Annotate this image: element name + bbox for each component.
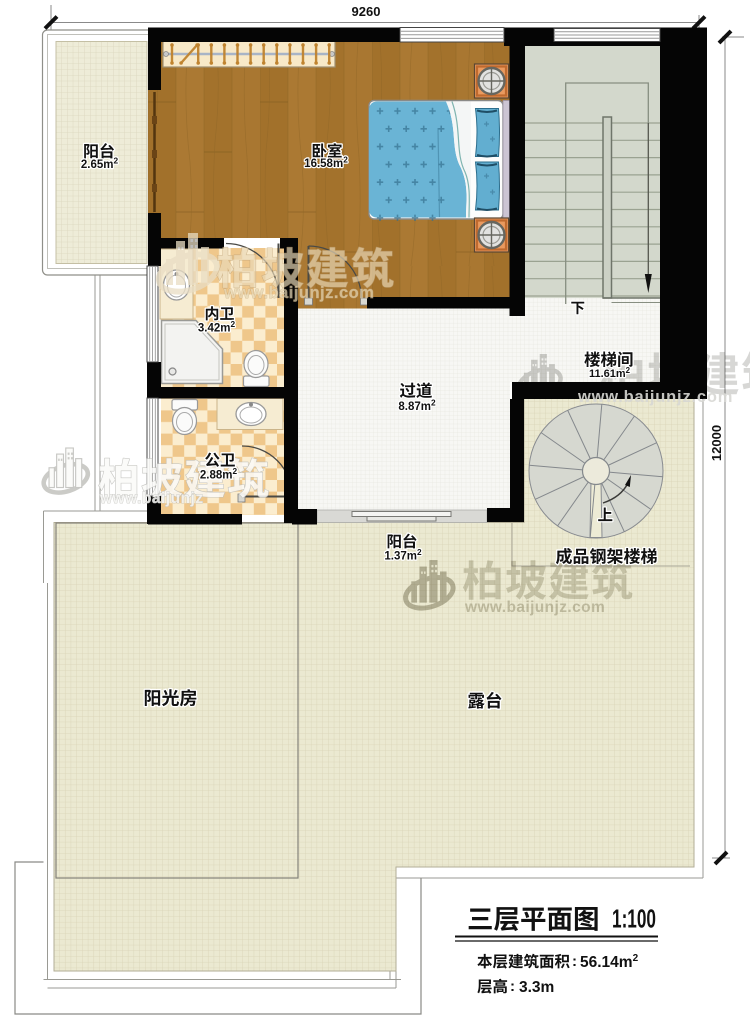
svg-text::: : [572,953,577,970]
svg-text:11.61m2: 11.61m2 [589,366,631,380]
svg-text:3.3m: 3.3m [519,979,554,996]
svg-text:12000: 12000 [709,425,724,461]
svg-text:www.baijunjz: www.baijunjz [99,490,204,507]
svg-text::: : [510,978,515,995]
svg-text:56.14m2: 56.14m2 [580,953,639,971]
svg-text:www.baijunjz.com: www.baijunjz.com [464,599,605,616]
svg-text:www.baijunjz.com: www.baijunjz.com [223,284,374,302]
svg-text:1:100: 1:100 [612,904,656,934]
svg-text:9260: 9260 [352,4,381,19]
svg-text:www.baijunjz.com: www.baijunjz.com [577,388,733,406]
